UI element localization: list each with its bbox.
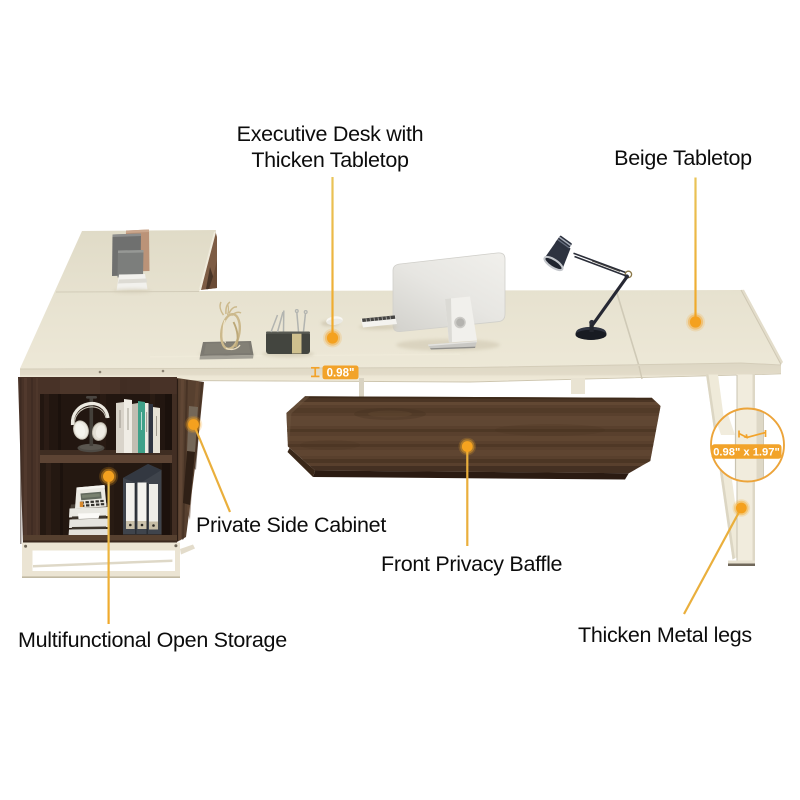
svg-text:0.98" x 1.97": 0.98" x 1.97" (713, 447, 780, 459)
svg-text:0.98": 0.98" (327, 367, 355, 379)
